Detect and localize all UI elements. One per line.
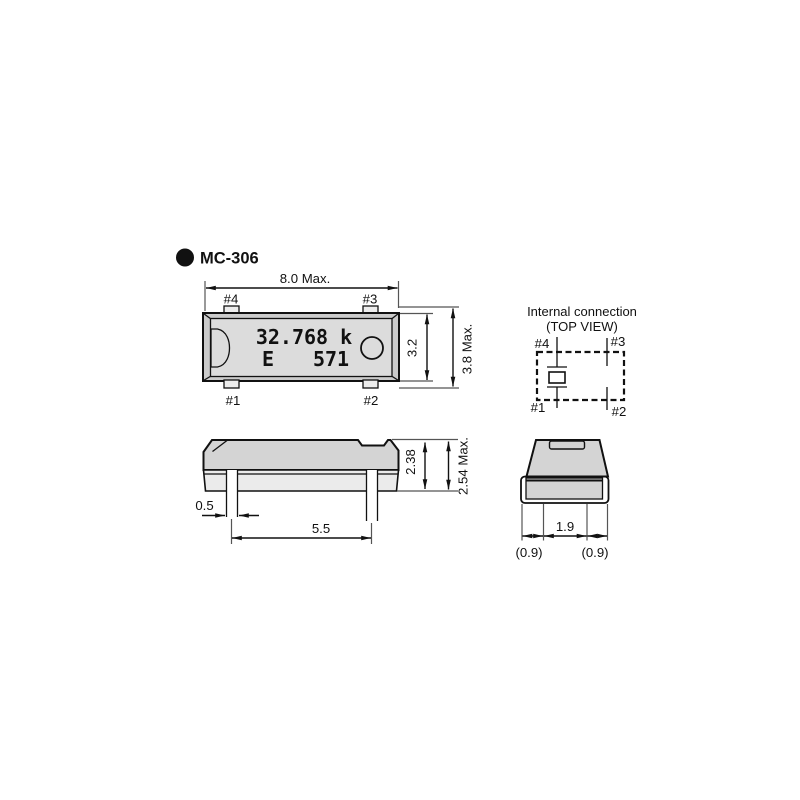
marking-code: 571 [313, 347, 349, 371]
end-view: 1.9 (0.9) (0.9) [515, 440, 608, 560]
side-view: 0.5 5.5 2.38 2.54 Max. [195, 437, 470, 544]
product-model: MC-306 [200, 250, 259, 268]
pin1-label: #1 [226, 393, 241, 408]
dim-width-label: 8.0 Max. [280, 271, 331, 286]
end-can-tab [550, 441, 585, 449]
mechanical-drawing: MC-306 8.0 Max. #4 #3 32.768 k E 571 [0, 0, 800, 800]
internal-connection-diagram: Internal connection (TOP VIEW) #4 #3 #1 … [527, 304, 637, 419]
side-lead-right [367, 470, 378, 521]
dim-side-body-height-label: 2.38 [403, 449, 418, 475]
internal-connection-title: Internal connection [527, 304, 637, 319]
crystal-symbol [549, 372, 565, 383]
product-header: MC-306 [176, 249, 259, 268]
datasheet-drawing-page: MC-306 8.0 Max. #4 #3 32.768 k E 571 [0, 0, 800, 800]
side-lead-left [227, 470, 238, 517]
top-view: 8.0 Max. #4 #3 32.768 k E 571 #1 #2 3.2 [203, 271, 475, 408]
bullet-icon [176, 249, 194, 267]
marking-grade: E [262, 347, 274, 371]
side-body-top [204, 440, 399, 470]
dim-lead-width-label: 0.5 [195, 498, 213, 513]
pin4-label: #4 [224, 292, 239, 307]
dim-body-height-label: 3.2 [405, 339, 420, 357]
orientation-d-mark [211, 329, 230, 367]
pin2-pad [363, 380, 378, 388]
dim-lead-span-label: 1.9 [556, 519, 574, 534]
dim-end-annotation: 1.9 (0.9) (0.9) [515, 504, 608, 560]
dim-lead-pitch-annotation: 5.5 [232, 519, 372, 544]
dim-lead-pitch-label: 5.5 [312, 521, 330, 536]
dim-overall-height-label: 3.8 Max. [460, 324, 475, 375]
package-body-top: 32.768 k E 571 [203, 313, 399, 381]
dim-left-margin-label: (0.9) [515, 545, 542, 560]
dim-side-body-height-annotation: 2.38 2.54 Max. [392, 437, 471, 495]
ic-pin2-label: #2 [612, 404, 627, 419]
seal-hole [361, 337, 383, 359]
pin3-label: #3 [363, 292, 378, 307]
ic-pin4-label: #4 [535, 336, 550, 351]
dim-body-height-annotation: 3.2 [400, 314, 433, 382]
internal-connection-subtitle: (TOP VIEW) [546, 319, 618, 334]
dim-right-margin-label: (0.9) [581, 545, 608, 560]
dim-side-overall-height-label: 2.54 Max. [456, 437, 471, 495]
ic-pin1-label: #1 [531, 400, 546, 415]
pin1-pad [224, 380, 239, 388]
marking-frequency: 32.768 k [256, 325, 352, 349]
pin2-label: #2 [364, 393, 379, 408]
crystal-branch [547, 337, 567, 408]
ic-pin3-label: #3 [611, 334, 626, 349]
